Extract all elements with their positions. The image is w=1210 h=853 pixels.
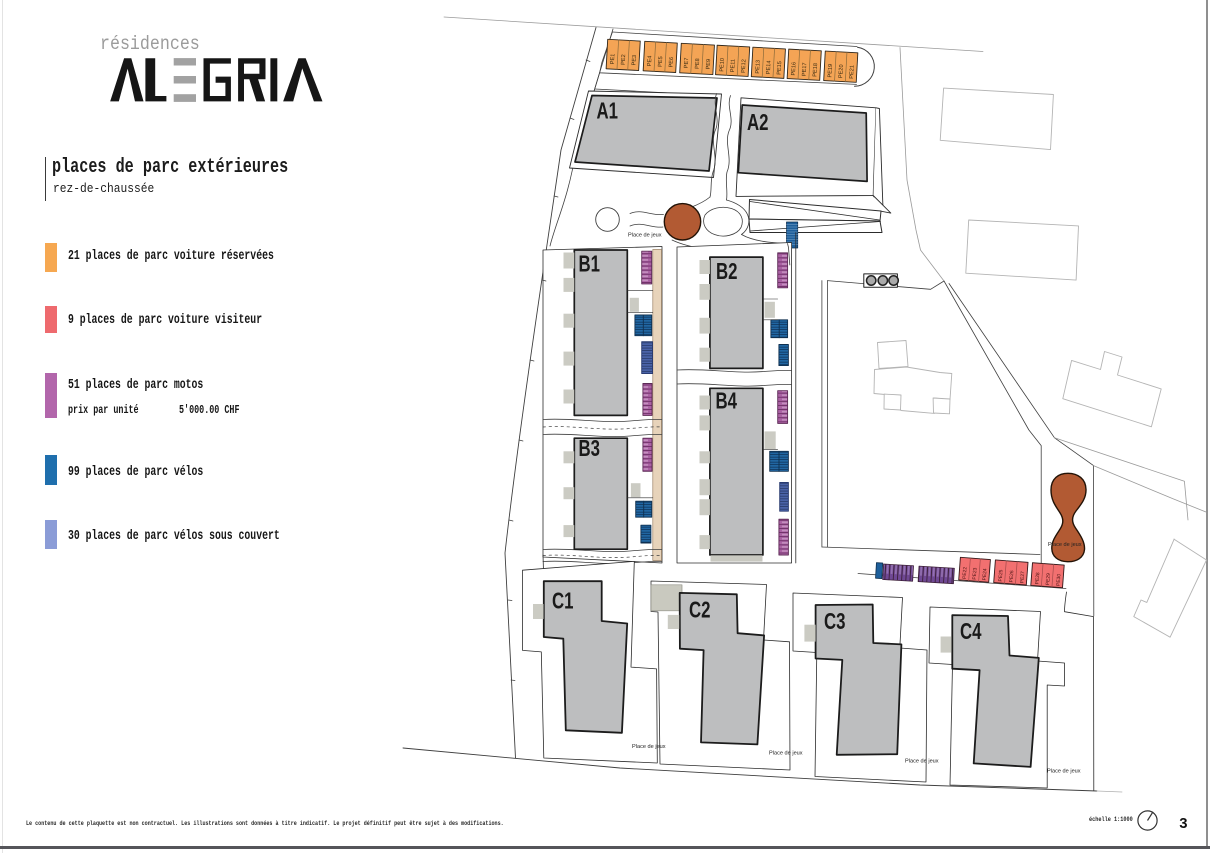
svg-text:B4: B4: [716, 388, 738, 414]
svg-text:A2: A2: [747, 109, 769, 135]
svg-text:PE16: PE16: [791, 62, 798, 76]
svg-text:B3: B3: [579, 435, 601, 461]
svg-text:Place de jeux: Place de jeux: [632, 744, 666, 750]
svg-text:PE6: PE6: [668, 57, 675, 68]
svg-text:Place de jeux: Place de jeux: [1048, 542, 1082, 548]
svg-text:A1: A1: [597, 98, 619, 124]
svg-text:PE17: PE17: [802, 62, 809, 76]
svg-text:PE8: PE8: [695, 58, 702, 69]
svg-text:PE18: PE18: [812, 63, 819, 77]
svg-text:PE26: PE26: [1008, 570, 1015, 583]
svg-text:PE11: PE11: [730, 59, 737, 73]
svg-text:PE23: PE23: [972, 567, 979, 580]
svg-text:PE2: PE2: [621, 54, 628, 65]
svg-text:Place de jeux: Place de jeux: [628, 233, 662, 239]
svg-text:PE24: PE24: [982, 568, 989, 581]
svg-text:PE29: PE29: [1045, 573, 1052, 586]
svg-text:PE22: PE22: [962, 566, 969, 579]
svg-text:Place de jeux: Place de jeux: [905, 759, 939, 765]
svg-text:Place de jeux: Place de jeux: [1047, 769, 1081, 775]
svg-text:C2: C2: [689, 597, 711, 623]
svg-text:B2: B2: [716, 258, 738, 284]
svg-text:PE27: PE27: [1019, 571, 1026, 584]
svg-text:PE20: PE20: [838, 64, 845, 78]
svg-text:PE19: PE19: [827, 64, 834, 78]
svg-text:Place de jeux: Place de jeux: [769, 751, 803, 757]
svg-text:PE13: PE13: [755, 60, 762, 74]
svg-text:PE7: PE7: [684, 58, 691, 69]
svg-text:PE30: PE30: [1056, 574, 1063, 587]
svg-text:PE25: PE25: [998, 569, 1005, 582]
svg-text:PE5: PE5: [658, 56, 665, 67]
svg-text:PE3: PE3: [631, 55, 638, 66]
svg-text:C3: C3: [824, 608, 846, 634]
svg-text:C1: C1: [552, 588, 574, 614]
svg-text:PE10: PE10: [719, 58, 726, 72]
svg-text:PE28: PE28: [1034, 572, 1041, 585]
svg-text:PE1: PE1: [610, 54, 617, 65]
svg-text:PE4: PE4: [647, 56, 654, 67]
svg-text:PE14: PE14: [766, 60, 773, 74]
svg-text:B1: B1: [579, 251, 601, 277]
svg-text:PE12: PE12: [741, 59, 748, 73]
svg-text:PE21: PE21: [849, 65, 856, 79]
svg-text:C4: C4: [960, 618, 982, 644]
svg-text:PE9: PE9: [706, 59, 713, 70]
svg-text:PE15: PE15: [777, 61, 784, 75]
